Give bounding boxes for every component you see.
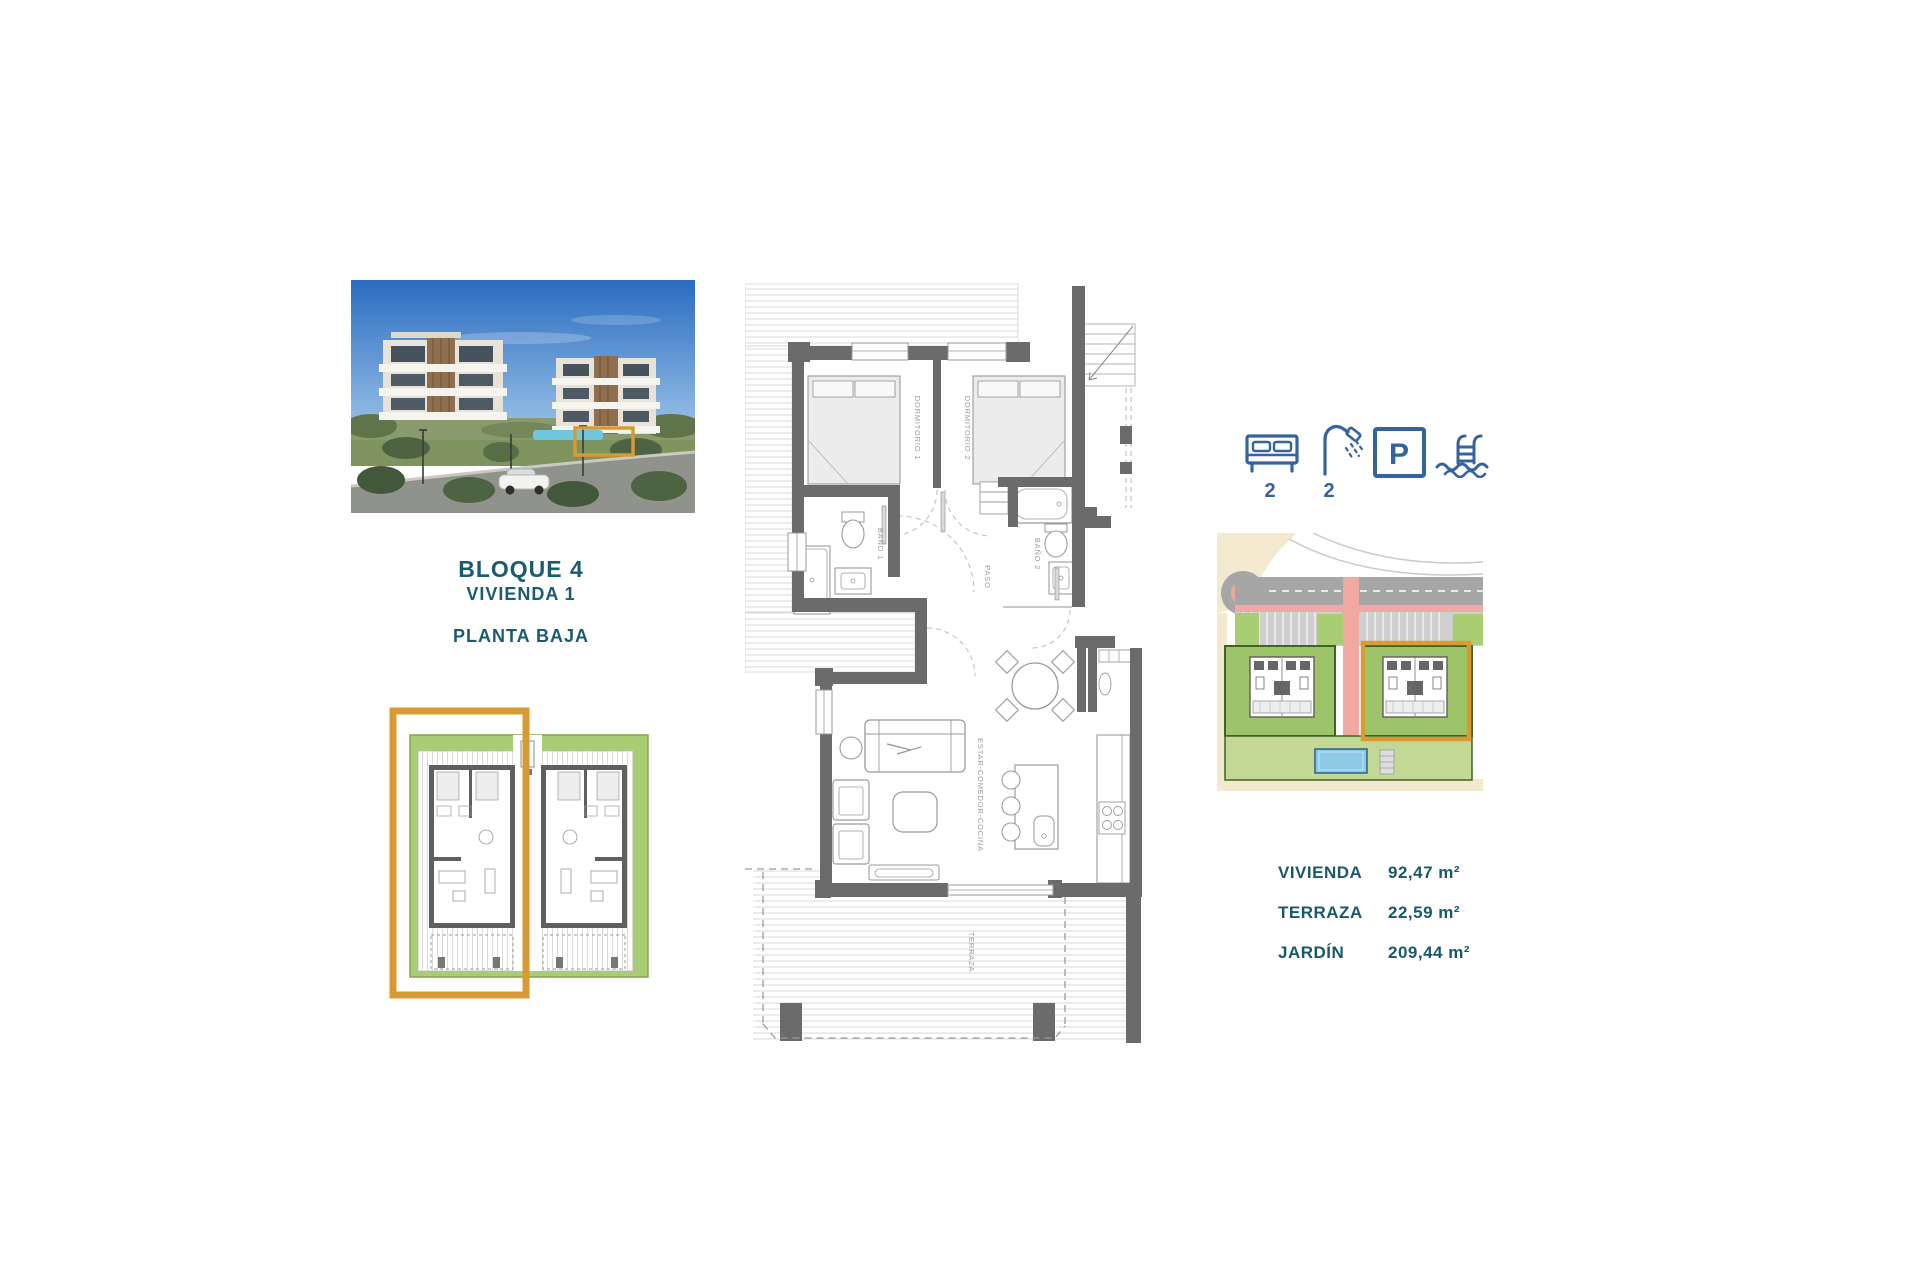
terrace-label: TERRAZA [967,932,976,973]
bath1-label: BAÑO 1 [876,528,885,560]
unit-title: VIVIENDA 1 [391,583,651,605]
area-row-jardin: JARDÍN 209,44 m² [1278,933,1498,973]
bathrooms-count: 2 [1317,480,1341,503]
area-table: VIVIENDA 92,47 m² TERRAZA 22,59 m² JARDÍ… [1278,853,1498,973]
parking-icon: P [1372,427,1427,479]
bath2-label: BAÑO 2 [1033,538,1042,570]
area-value: 22,59 m² [1388,903,1460,923]
area-value: 92,47 m² [1388,863,1460,883]
area-row-vivienda: VIVIENDA 92,47 m² [1278,853,1498,893]
bedrooms-feature [1243,428,1301,474]
site-location-map [1217,533,1483,791]
area-row-terraza: TERRAZA 22,59 m² [1278,893,1498,933]
map-building-footprint [1250,657,1314,717]
bed-icon [1243,428,1301,474]
exterior-render-illustration [351,280,695,513]
pool-feature [1435,430,1491,478]
block-title: BLOQUE 4 [391,556,651,583]
bedroom2-label: DORMITORIO 2 [963,396,972,460]
bed-1 [808,376,900,484]
building-left [379,332,507,420]
hall-label: PASO [983,565,992,588]
area-value: 209,44 m² [1388,943,1470,963]
bed-2 [973,376,1065,484]
building-right [552,356,660,434]
bedroom1-label: DORMITORIO 1 [913,396,922,460]
parking-letter: P [1389,438,1409,471]
area-label: TERRAZA [1278,903,1388,923]
floor-title: PLANTA BAJA [391,625,651,647]
area-label: VIVIENDA [1278,863,1388,883]
floor-plan: DORMITORIO 1 DORMITORIO 2 BAÑO 1 BAÑO 2 … [745,280,1150,1065]
bathrooms-feature [1317,420,1367,476]
brochure-page: BLOQUE 4 VIVIENDA 1 PLANTA BAJA [0,0,1920,1280]
pool-icon [1435,430,1491,478]
living-label: ESTAR-COMEDOR-COCINA [976,738,985,852]
bedrooms-count: 2 [1258,480,1282,503]
parking-feature: P [1372,427,1427,479]
area-label: JARDÍN [1278,943,1388,963]
title-block: BLOQUE 4 VIVIENDA 1 PLANTA BAJA [391,556,651,647]
mini-site-plan [385,705,660,1001]
exterior-render-photo [351,280,695,513]
shower-icon [1317,420,1367,476]
